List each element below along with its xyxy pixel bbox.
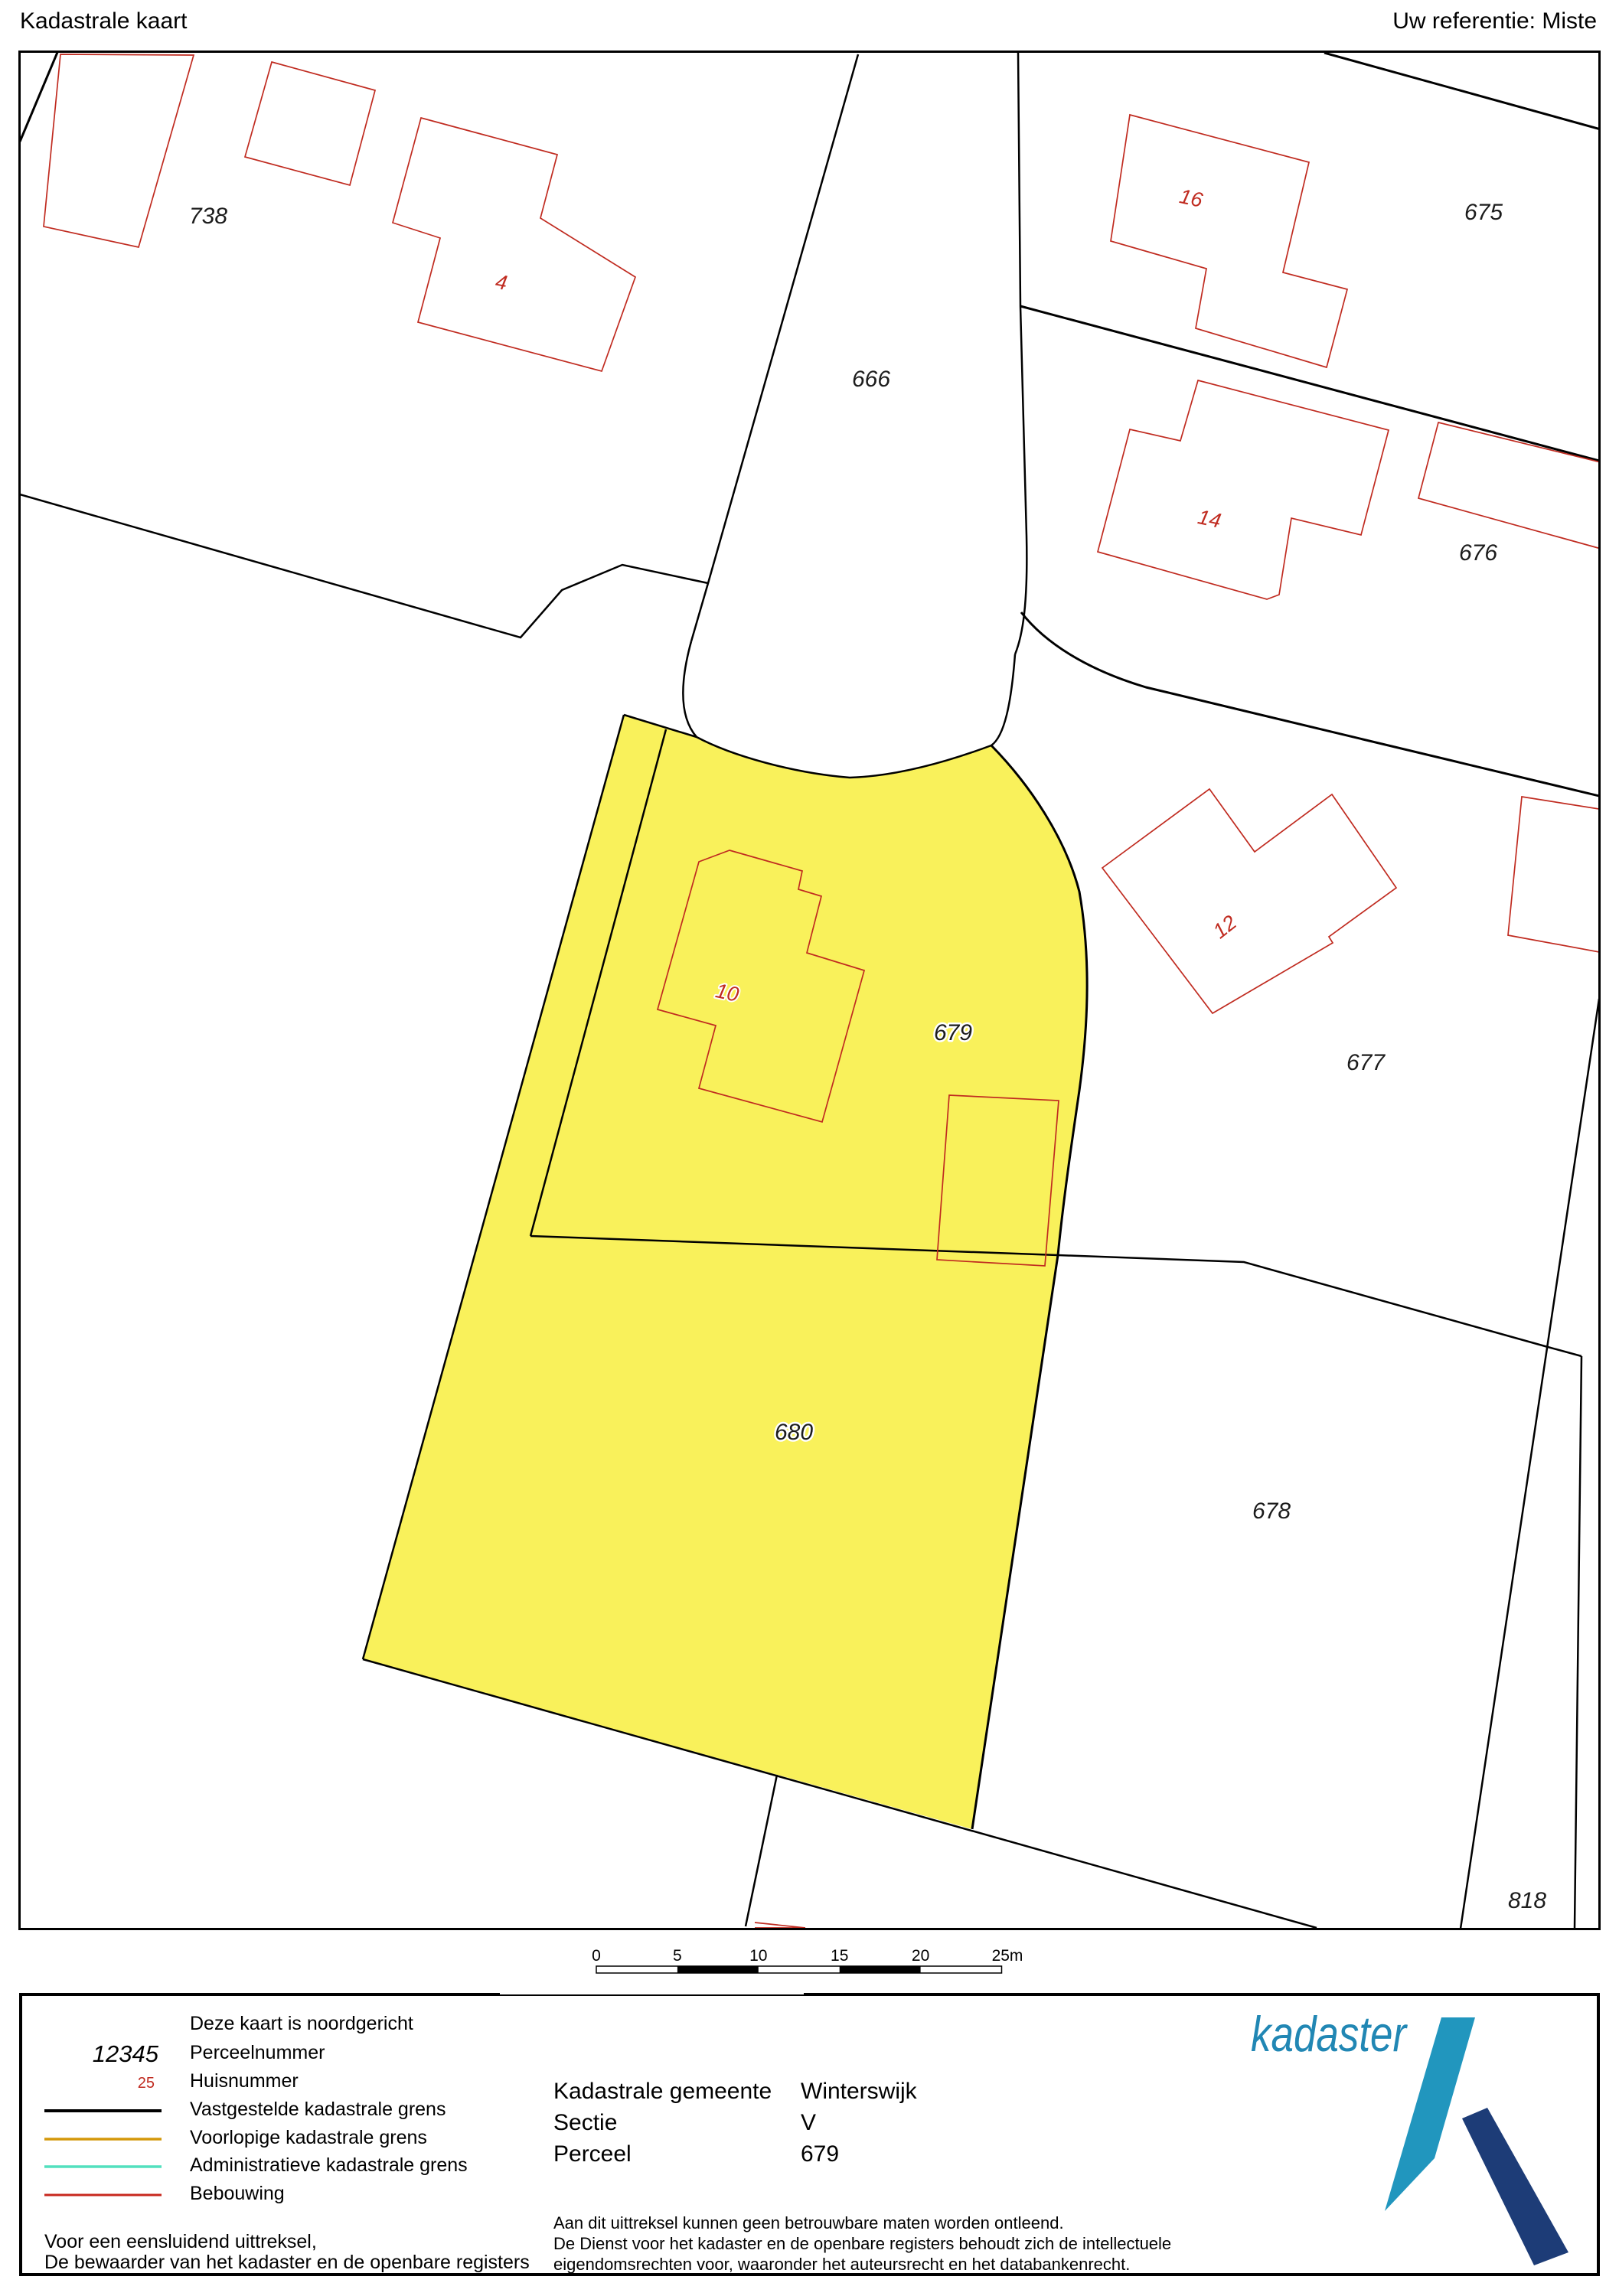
svg-text:738: 738 [189, 204, 227, 229]
svg-text:Voor een eensluidend uittrekse: Voor een eensluidend uittreksel, [44, 2231, 317, 2252]
svg-text:kadaster: kadaster [1251, 2006, 1408, 2062]
svg-text:De bewaarder van het kadaster: De bewaarder van het kadaster en de open… [44, 2252, 530, 2273]
svg-text:678: 678 [1252, 1499, 1291, 1524]
svg-text:eigendomsrechten voor, waarond: eigendomsrechten voor, waaronder het aut… [553, 2255, 1130, 2274]
svg-text:De Dienst voor het kadaster en: De Dienst voor het kadaster en de openba… [553, 2234, 1171, 2253]
svg-text:20: 20 [912, 1947, 929, 1965]
svg-text:Uw referentie: Miste: Uw referentie: Miste [1392, 8, 1597, 34]
svg-text:Voorlopige kadastrale grens: Voorlopige kadastrale grens [190, 2127, 427, 2148]
svg-text:V: V [801, 2110, 816, 2135]
svg-text:Aan dit uittreksel kunnen geen: Aan dit uittreksel kunnen geen betrouwba… [553, 2213, 1064, 2232]
svg-text:675: 675 [1464, 200, 1503, 225]
svg-text:676: 676 [1459, 540, 1497, 566]
svg-text:666: 666 [852, 367, 890, 392]
svg-text:Perceel: Perceel [553, 2141, 632, 2167]
svg-text:0: 0 [592, 1947, 601, 1965]
svg-text:Sectie: Sectie [553, 2110, 617, 2135]
svg-text:Perceelnummer: Perceelnummer [190, 2042, 325, 2063]
svg-text:Kadastrale kaart: Kadastrale kaart [20, 8, 188, 34]
svg-text:10: 10 [749, 1947, 767, 1965]
svg-text:5: 5 [673, 1947, 682, 1965]
svg-text:680: 680 [775, 1420, 813, 1445]
svg-text:818: 818 [1508, 1888, 1546, 1913]
svg-text:25: 25 [138, 2075, 155, 2092]
svg-text:679: 679 [801, 2141, 839, 2167]
svg-text:Bebouwing: Bebouwing [190, 2183, 285, 2204]
svg-text:25m: 25m [992, 1947, 1023, 1965]
svg-text:Winterswijk: Winterswijk [801, 2079, 918, 2104]
svg-text:14: 14 [1196, 505, 1223, 533]
svg-text:Huisnummer: Huisnummer [190, 2070, 299, 2092]
svg-text:12345: 12345 [93, 2040, 159, 2067]
svg-text:677: 677 [1346, 1050, 1386, 1075]
svg-text:10: 10 [713, 979, 741, 1006]
svg-text:Administratieve kadastrale gre: Administratieve kadastrale grens [190, 2154, 468, 2176]
svg-text:15: 15 [831, 1947, 848, 1965]
svg-text:Kadastrale gemeente: Kadastrale gemeente [553, 2079, 772, 2104]
svg-text:Vastgestelde kadastrale grens: Vastgestelde kadastrale grens [190, 2099, 446, 2120]
svg-text:Deze kaart is noordgericht: Deze kaart is noordgericht [190, 2013, 413, 2034]
svg-text:679: 679 [934, 1020, 972, 1045]
